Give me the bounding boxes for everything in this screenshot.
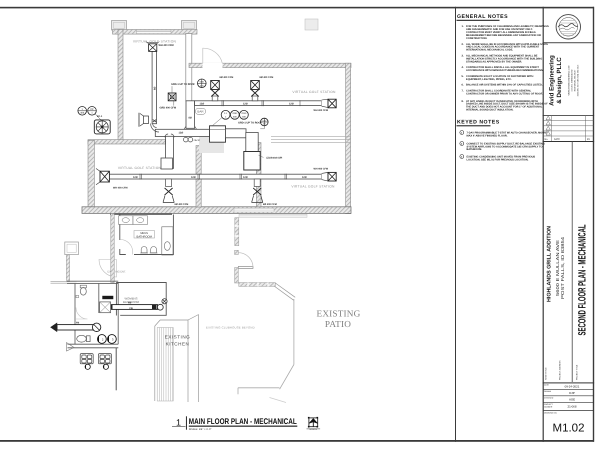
svg-text:PROJECT TITLE: PROJECT TITLE [576,364,579,380]
svg-text:SCALE: 1/4" = 1'-0": SCALE: 1/4" = 1'-0" [189,428,212,431]
svg-text:8Ø 400 CFM: 8Ø 400 CFM [220,76,234,79]
svg-text:NORTH: NORTH [310,428,318,431]
svg-text:GRD: GRD [241,112,246,115]
svg-text:8Ø: 8Ø [154,87,157,90]
svg-text:GRD: GRD [200,81,205,84]
svg-text:EQUIPMENT, LIGHTING, PIPING, E: EQUIPMENT, LIGHTING, PIPING, ETC. [466,78,512,81]
svg-text:8.: 8. [462,100,464,103]
svg-text:400: 400 [263,123,266,126]
svg-text:1.: 1. [462,25,464,28]
svg-text:VIRTUAL GOLF STATION: VIRTUAL GOLF STATION [118,166,162,170]
svg-text:SECOND FLOOR PLAN - MECHANICAL: SECOND FLOOR PLAN - MECHANICAL [577,224,589,335]
svg-text:12Ø: 12Ø [133,176,138,179]
svg-text:7.: 7. [462,89,464,92]
svg-text:12Ø: 12Ø [200,103,205,106]
svg-text:PATIO: PATIO [325,319,351,329]
svg-text:12Ø: 12Ø [179,131,184,134]
svg-text:SHEET TITLE: SHEET TITLE [545,367,548,380]
svg-text:KITCHEN: KITCHEN [166,341,190,346]
svg-text:FB: FB [130,307,133,310]
svg-text:M1.02: M1.02 [553,423,585,435]
svg-text:12Ø: 12Ø [243,103,248,106]
svg-text:12Ø: 12Ø [191,176,196,179]
svg-text:DATE: DATE [544,383,550,386]
svg-text:DATE: DATE [554,138,560,141]
svg-text:6.: 6. [462,84,464,87]
svg-text:MAIN FLOOR PLAN - MECHANICAL: MAIN FLOOR PLAN - MECHANICAL [189,417,297,426]
svg-text:CONSTRUCTION.: CONSTRUCTION. [466,37,488,40]
svg-text:GRD 400 CFM: GRD 400 CFM [160,107,177,110]
svg-text:WH 400 CFM: WH 400 CFM [314,109,328,112]
svg-text:INTERNAL SOUND DUCT INSULATION: INTERNAL SOUND DUCT INSULATION. [466,109,514,112]
svg-text:GRD-1 UP TO ROOF: GRD-1 UP TO ROOF [238,121,262,124]
svg-text:41519 N. MERIDIAN RD: 41519 N. MERIDIAN RD [571,69,574,91]
svg-text:BATHROOM.: BATHROOM. [467,148,483,151]
svg-text:EF-1: EF-1 [97,115,103,118]
svg-text:BATHROOM: BATHROOM [137,235,153,238]
svg-text:& Design, PLLC: & Design, PLLC [556,57,563,104]
svg-text:12Ø: 12Ø [243,176,248,179]
svg-text:EXISTING CLUBHOUSE BEYOND: EXISTING CLUBHOUSE BEYOND [206,326,255,330]
svg-text:8Ø 400 CFM: 8Ø 400 CFM [175,203,189,206]
svg-text:(509) 981-5473 OR (509) 294-46: (509) 981-5473 OR (509) 294-4613 [577,64,580,96]
svg-text:Avid Engineering: Avid Engineering [549,55,556,106]
svg-text:MAX 4' ABOVE FINISHED FLOOR.: MAX 4' ABOVE FINISHED FLOOR. [467,134,508,137]
svg-text:VIRTUAL GOLF STATION: VIRTUAL GOLF STATION [291,185,335,189]
svg-text:FB: FB [128,301,131,304]
svg-text:FB: FB [76,322,79,325]
svg-text:HIGHLANDS GRILL ADDITION: HIGHLANDS GRILL ADDITION [547,226,553,302]
svg-text:BY: BY [587,138,591,141]
svg-text:INTERNATIONAL MECHANICAL CODE.: INTERNATIONAL MECHANICAL CODE. [466,49,513,52]
svg-text:8Ø 400 CFM: 8Ø 400 CFM [260,76,274,79]
svg-text:(2)10x8x8 U/R: (2)10x8x8 U/R [267,157,283,160]
svg-text:21-068: 21-068 [567,405,576,409]
svg-text:BATHROOM: BATHROOM [123,300,140,304]
svg-text:CONTRACTOR OR OWNER PRIOR TO A: CONTRACTOR OR OWNER PRIOR TO ANY CUTTING… [466,92,543,95]
svg-text:LOCATION. SEE M1.01 FOR PREVI: LOCATION. SEE M1.01 FOR PREVIOUS LOCATIO… [467,158,529,161]
svg-text:GRD-1 UP TO ROOF: GRD-1 UP TO ROOF [171,83,195,86]
svg-text:POST FALLS, ID 83854: POST FALLS, ID 83854 [560,236,565,299]
svg-text:DRAWN: DRAWN [544,390,552,393]
svg-text:EXISTING ENT.: EXISTING ENT. [108,270,127,273]
svg-text:12Ø: 12Ø [289,103,294,106]
svg-text:8Ø: 8Ø [189,117,192,120]
svg-text:GRD: GRD [232,112,237,115]
svg-text:RATHDRUM, WA 99157: RATHDRUM, WA 99157 [574,69,577,91]
svg-text:AOE: AOE [569,397,575,401]
svg-text:WH 400 CFM: WH 400 CFM [314,167,328,170]
svg-text:VIRTUAL GOLF STATION: VIRTUAL GOLF STATION [292,90,336,94]
svg-text:8Ø 400 CFM: 8Ø 400 CFM [263,203,277,206]
svg-text:CHECKED: CHECKED [544,397,554,400]
svg-text:WWW.AVIDENGINEERING.COM: WWW.AVIDENGINEERING.COM [568,65,571,95]
svg-text:EXISTING: EXISTING [317,309,361,319]
svg-text:26x10: 26x10 [194,139,201,142]
svg-text:BAR: BAR [197,110,204,114]
svg-text:KEYED NOTES: KEYED NOTES [457,120,500,126]
svg-text:DJP: DJP [569,391,575,395]
svg-text:3.: 3. [462,55,464,58]
svg-text:1: 1 [176,417,181,427]
svg-text:12Ø: 12Ø [302,176,307,179]
svg-text:STANDARDS AS APPROVED BY THE O: STANDARDS AS APPROVED BY THE OWNER. [466,60,522,63]
svg-text:4.: 4. [462,66,464,69]
svg-text:09-24-2021: 09-24-2021 [565,385,580,389]
svg-text:ACCORDANCE WITH MANUFACTURERS: ACCORDANCE WITH MANUFACTURERS RECOMMENDA… [466,69,544,72]
svg-text:WH 400 CFM: WH 400 CFM [113,187,127,190]
svg-text:WH 400 CFM: WH 400 CFM [159,44,174,47]
svg-text:BALANCE AIR SYSTEMS WITHIN 10%: BALANCE AIR SYSTEMS WITHIN 10% OF CAPACI… [466,84,543,87]
svg-text:EXISTING: EXISTING [165,335,190,340]
svg-text:5.: 5. [462,75,464,78]
svg-text:GENERAL NOTES: GENERAL NOTES [457,14,508,20]
svg-text:PROJECT ADDRESS: PROJECT ADDRESS [559,360,562,380]
svg-text:No.: No. [545,138,549,141]
svg-text:GRD: GRD [262,119,267,122]
svg-text:NUMBER: NUMBER [544,406,553,409]
svg-text:2.: 2. [462,43,464,46]
svg-text:DRAWING NO.: DRAWING NO. [544,411,557,414]
